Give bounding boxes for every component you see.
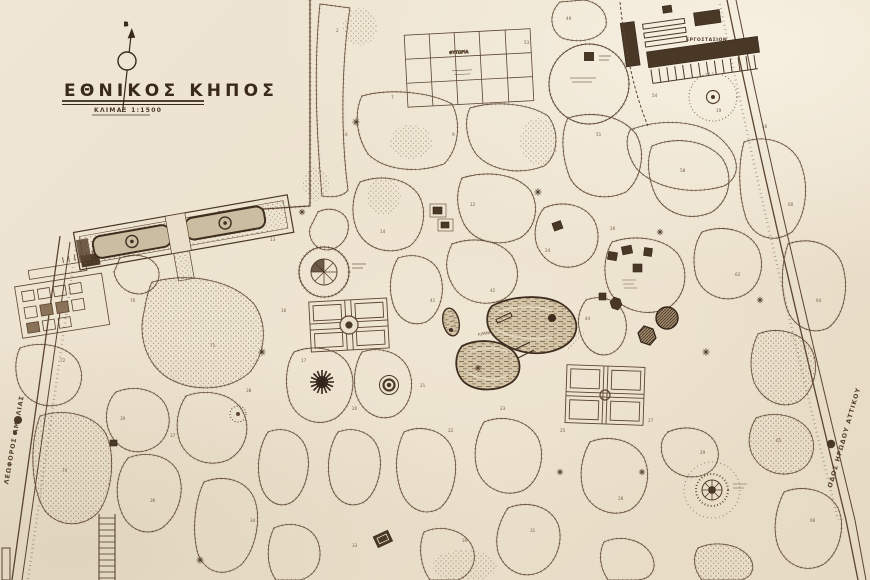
boundary-lines	[218, 0, 310, 212]
area-number: 34	[250, 518, 256, 523]
area-number: 6	[345, 132, 348, 137]
area-number: 22	[448, 428, 454, 433]
plaza-circle	[549, 44, 629, 124]
area-number: 49	[566, 16, 572, 21]
area-number: 7	[391, 95, 394, 100]
area-number: 56	[762, 124, 768, 129]
area-number: 58	[680, 168, 686, 173]
sundial	[310, 370, 334, 394]
area-number: 23	[500, 406, 506, 411]
formal-square	[309, 298, 390, 352]
area-number: 42	[490, 288, 496, 293]
garden-map-sheet: ΛΙΜΝΗ ΕΡΓΟΣΤΑΣΙΟΝ	[0, 0, 870, 580]
area-number: 24	[545, 248, 551, 253]
area-number: 29	[700, 450, 706, 455]
area-number: 26	[610, 226, 616, 231]
area-number: 37	[170, 433, 176, 438]
area-number: 13	[270, 237, 276, 242]
area-number: 17	[301, 358, 307, 363]
hex-aviary	[638, 326, 656, 345]
area-number: 31	[530, 528, 536, 533]
trellis-walk	[99, 514, 115, 580]
plots-grid	[11, 249, 110, 338]
area-number: 41	[430, 298, 436, 303]
herodou-attikou-label: ΟΔΟΣ ΗΡΩΔΟΥ ΑΤΤΙΚΟΥ	[827, 386, 862, 488]
area-number: 74	[62, 468, 68, 473]
page-title: ΕΘΝΙΚΟΣ ΚΗΠΟΣ	[64, 81, 278, 101]
area-number: 14	[380, 229, 386, 234]
plaza-monument	[584, 52, 594, 61]
area-number: 9	[452, 132, 455, 137]
parterre-walk	[174, 251, 195, 281]
rosette-circle	[689, 73, 737, 121]
factory-kiosk	[662, 5, 672, 13]
lake-label: ΛΙΜΝΗ	[477, 329, 493, 337]
lake-islet	[548, 314, 556, 322]
title-block: ΕΘΝΙΚΟΣ ΚΗΠΟΣ ΚΛΙΜΑΞ 1:1500	[62, 81, 278, 115]
target-feature	[380, 376, 399, 395]
area-number: 30	[462, 538, 468, 543]
area-number: 65	[776, 438, 782, 443]
area-number: 27	[648, 418, 654, 423]
area-number: 19	[716, 108, 722, 113]
area-number: 20	[352, 406, 358, 411]
area-number: 12	[470, 202, 476, 207]
zoo-kiosks	[599, 245, 678, 345]
area-number: 60	[788, 202, 794, 207]
area-number: 38	[246, 388, 252, 393]
area-number: 66	[810, 518, 816, 523]
stipple-layer	[303, 8, 585, 580]
area-number: 25	[560, 428, 566, 433]
nursery-grid: ΦΥΤΩΡΙΑ	[404, 29, 534, 107]
scale-label: ΚΛΙΜΑΞ 1:1500	[94, 107, 162, 114]
area-number: 70	[130, 298, 136, 303]
fountain-plaza	[684, 462, 747, 518]
area-number: 33	[352, 543, 358, 548]
area-number: 28	[618, 496, 624, 501]
area-number: 2	[336, 28, 339, 33]
duck-pond	[440, 307, 461, 338]
area-number: 16	[281, 308, 287, 313]
round-aviary	[656, 307, 678, 329]
area-number: 72	[60, 358, 66, 363]
amalias-avenue-label: ΛΕΩΦΟΡΟΣ ΑΜΑΛΙΑΣ	[3, 395, 26, 485]
formal-square-east	[565, 365, 645, 426]
amalias-avenue-road	[2, 236, 76, 580]
nursery-label: ΦΥΤΩΡΙΑ	[449, 49, 469, 55]
national-garden-map-svg: ΛΙΜΝΗ ΕΡΓΟΣΤΑΣΙΟΝ	[0, 0, 870, 580]
area-number: 54	[652, 93, 658, 98]
compass-north-letter: Β	[124, 22, 128, 28]
herodou-attikou-road	[720, 0, 866, 580]
area-number: 39	[120, 416, 126, 421]
area-number: 53	[524, 40, 530, 45]
area-number: 62	[735, 272, 741, 277]
factory-label: ΕΡΓΟΣΤΑΣΙΟΝ	[686, 37, 727, 43]
area-number: 64	[816, 298, 822, 303]
pergola-circle	[299, 247, 366, 297]
lake-group: ΛΙΜΝΗ	[440, 297, 576, 389]
area-number: 21	[420, 383, 426, 388]
area-number: 36	[150, 498, 156, 503]
area-number: 44	[585, 316, 591, 321]
area-number: 71	[210, 343, 216, 348]
area-number: 51	[596, 132, 602, 137]
factory-annex-building	[694, 9, 722, 25]
